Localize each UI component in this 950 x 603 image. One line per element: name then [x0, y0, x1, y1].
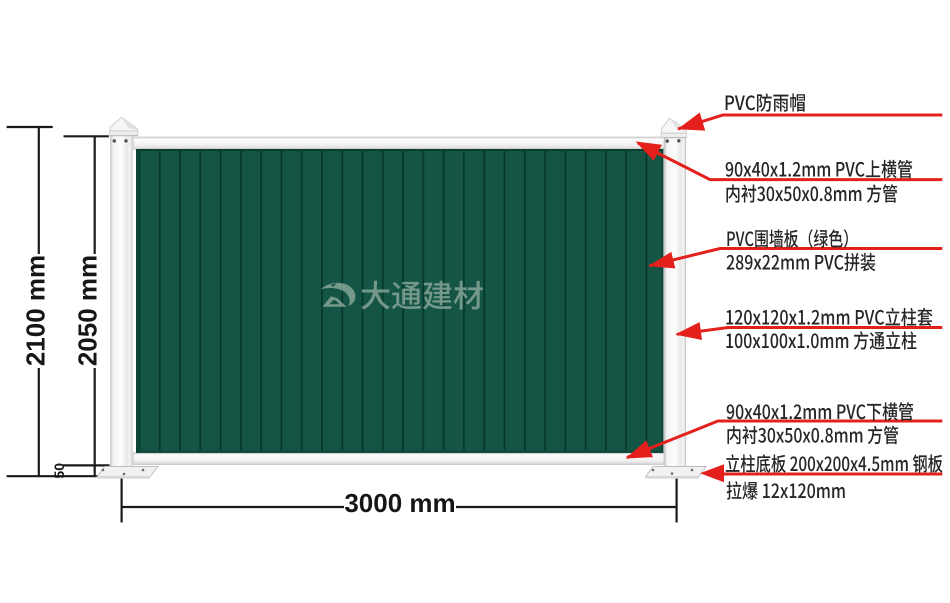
svg-text:3000 mm: 3000 mm	[344, 488, 455, 518]
svg-text:2050 mm: 2050 mm	[73, 255, 103, 366]
svg-text:50: 50	[51, 463, 67, 479]
svg-text:2100 mm: 2100 mm	[21, 255, 51, 366]
